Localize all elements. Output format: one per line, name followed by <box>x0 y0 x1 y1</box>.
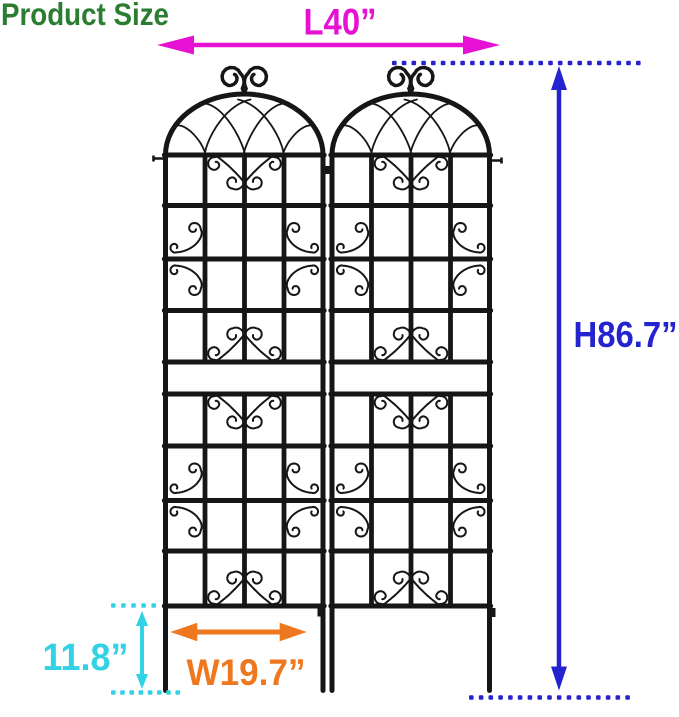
svg-text:L40”: L40” <box>304 2 377 43</box>
svg-text:W19.7”: W19.7” <box>187 651 306 693</box>
svg-text:H86.7”: H86.7” <box>574 314 678 355</box>
svg-text:Product Size: Product Size <box>1 0 169 32</box>
svg-text:11.8”: 11.8” <box>43 636 129 679</box>
